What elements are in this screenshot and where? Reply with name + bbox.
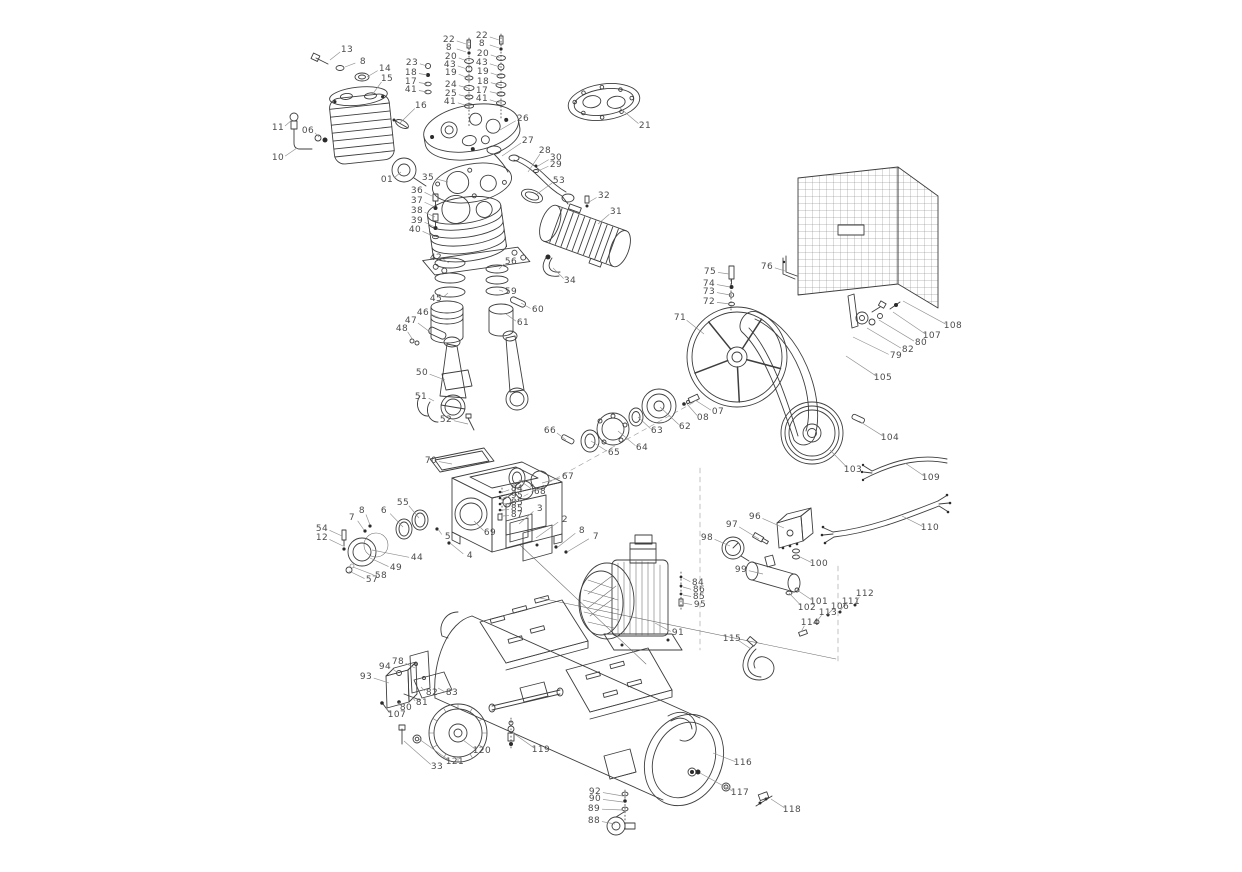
part-label-8: 8 bbox=[359, 506, 365, 516]
part-label-16: 16 bbox=[415, 101, 427, 111]
part-label-76: 76 bbox=[761, 262, 773, 272]
part-label-81: 81 bbox=[416, 698, 428, 708]
part-label-107: 107 bbox=[388, 710, 406, 720]
part-label-41: 41 bbox=[444, 97, 456, 107]
part-label-60: 60 bbox=[532, 305, 544, 315]
part-label-2: 2 bbox=[562, 515, 568, 525]
part-label-52: 52 bbox=[440, 415, 452, 425]
part-label-117: 117 bbox=[731, 788, 749, 798]
part-label-71: 71 bbox=[674, 313, 686, 323]
part-label-116: 116 bbox=[734, 758, 752, 768]
part-label-118: 118 bbox=[783, 805, 801, 815]
part-label-62: 62 bbox=[679, 422, 691, 432]
part-label-32: 32 bbox=[598, 191, 610, 201]
part-label-49: 49 bbox=[390, 563, 402, 573]
part-label-115: 115 bbox=[723, 634, 741, 644]
part-label-21: 21 bbox=[639, 121, 651, 131]
part-label-8: 8 bbox=[579, 526, 585, 536]
part-label-53: 53 bbox=[553, 176, 565, 186]
part-label-57: 57 bbox=[366, 575, 378, 585]
part-label-64: 64 bbox=[636, 443, 648, 453]
part-label-120: 120 bbox=[473, 746, 491, 756]
part-label-89: 89 bbox=[588, 804, 600, 814]
part-label-13: 13 bbox=[341, 45, 353, 55]
part-label-06: 06 bbox=[302, 126, 314, 136]
part-label-34: 34 bbox=[564, 276, 576, 286]
part-label-31: 31 bbox=[610, 207, 622, 217]
part-label-83: 83 bbox=[446, 688, 458, 698]
part-label-104: 104 bbox=[881, 433, 899, 443]
part-label-8: 8 bbox=[360, 57, 366, 67]
part-label-105: 105 bbox=[874, 373, 892, 383]
part-label-12: 12 bbox=[316, 533, 328, 543]
part-label-108: 108 bbox=[944, 321, 962, 331]
part-label-40: 40 bbox=[409, 225, 421, 235]
part-label-70: 70 bbox=[425, 456, 437, 466]
part-label-44: 44 bbox=[411, 553, 423, 563]
part-label-19: 19 bbox=[445, 68, 457, 78]
part-label-15: 15 bbox=[381, 74, 393, 84]
part-label-37: 37 bbox=[411, 196, 423, 206]
part-label-88: 88 bbox=[588, 816, 600, 826]
part-label-41: 41 bbox=[405, 85, 417, 95]
part-label-23: 23 bbox=[406, 58, 418, 68]
part-label-110: 110 bbox=[921, 523, 939, 533]
part-label-87: 87 bbox=[511, 510, 523, 520]
part-label-114: 114 bbox=[801, 618, 819, 628]
part-label-01: 01 bbox=[381, 175, 393, 185]
part-label-113: 113 bbox=[819, 608, 837, 618]
part-label-11: 11 bbox=[272, 123, 284, 133]
part-label-41: 41 bbox=[476, 94, 488, 104]
part-label-98: 98 bbox=[701, 533, 713, 543]
part-label-7: 7 bbox=[593, 532, 599, 542]
part-label-93: 93 bbox=[360, 672, 372, 682]
part-label-94: 94 bbox=[379, 662, 391, 672]
part-label-90: 90 bbox=[589, 794, 601, 804]
part-label-14: 14 bbox=[379, 64, 391, 74]
part-label-6: 6 bbox=[381, 506, 387, 516]
part-label-45: 45 bbox=[430, 294, 442, 304]
part-label-5: 5 bbox=[445, 532, 451, 542]
part-label-69: 69 bbox=[484, 528, 496, 538]
part-label-91: 91 bbox=[672, 628, 684, 638]
part-label-4: 4 bbox=[467, 551, 473, 561]
part-label-80: 80 bbox=[915, 338, 927, 348]
part-label-109: 109 bbox=[922, 473, 940, 483]
part-label-7: 7 bbox=[349, 513, 355, 523]
part-label-51: 51 bbox=[415, 392, 427, 402]
part-label-79: 79 bbox=[890, 351, 902, 361]
part-label-73: 73 bbox=[703, 287, 715, 297]
part-label-97: 97 bbox=[726, 520, 738, 530]
part-label-119: 119 bbox=[532, 745, 550, 755]
part-label-96: 96 bbox=[749, 512, 761, 522]
part-label-35: 35 bbox=[422, 173, 434, 183]
part-label-10: 10 bbox=[272, 153, 284, 163]
part-label-42: 42 bbox=[430, 253, 442, 263]
part-label-82: 82 bbox=[426, 688, 438, 698]
part-label-38: 38 bbox=[411, 206, 423, 216]
part-label-26: 26 bbox=[517, 114, 529, 124]
part-label-36: 36 bbox=[411, 186, 423, 196]
part-label-19: 19 bbox=[477, 67, 489, 77]
part-label-55: 55 bbox=[397, 498, 409, 508]
part-label-66: 66 bbox=[544, 426, 556, 436]
part-label-103: 103 bbox=[844, 465, 862, 475]
part-label-08: 08 bbox=[697, 413, 709, 423]
part-label-29: 29 bbox=[550, 160, 562, 170]
part-label-56: 56 bbox=[505, 257, 517, 267]
part-label-100: 100 bbox=[810, 559, 828, 569]
part-label-67: 67 bbox=[562, 472, 574, 482]
diagram-canvas: 1381415161106102318174122820431924254122… bbox=[0, 0, 1242, 872]
part-label-72: 72 bbox=[703, 297, 715, 307]
part-label-68: 68 bbox=[534, 487, 546, 497]
part-label-65: 65 bbox=[608, 448, 620, 458]
part-label-112: 112 bbox=[856, 589, 874, 599]
part-label-48: 48 bbox=[396, 324, 408, 334]
part-label-46: 46 bbox=[417, 308, 429, 318]
part-label-27: 27 bbox=[522, 136, 534, 146]
part-label-121: 121 bbox=[446, 757, 464, 767]
part-label-8: 8 bbox=[479, 39, 485, 49]
part-label-33: 33 bbox=[431, 762, 443, 772]
part-label-59: 59 bbox=[505, 287, 517, 297]
part-label-102: 102 bbox=[798, 603, 816, 613]
part-label-63: 63 bbox=[651, 426, 663, 436]
part-label-99: 99 bbox=[735, 565, 747, 575]
part-label-95: 95 bbox=[694, 600, 706, 610]
part-label-50: 50 bbox=[416, 368, 428, 378]
part-label-07: 07 bbox=[712, 407, 724, 417]
part-label-3: 3 bbox=[537, 504, 543, 514]
part-label-75: 75 bbox=[704, 267, 716, 277]
part-label-82: 82 bbox=[902, 345, 914, 355]
part-label-78: 78 bbox=[392, 657, 404, 667]
callout-layer: 1381415161106102318174122820431924254122… bbox=[0, 0, 1242, 872]
part-label-61: 61 bbox=[517, 318, 529, 328]
